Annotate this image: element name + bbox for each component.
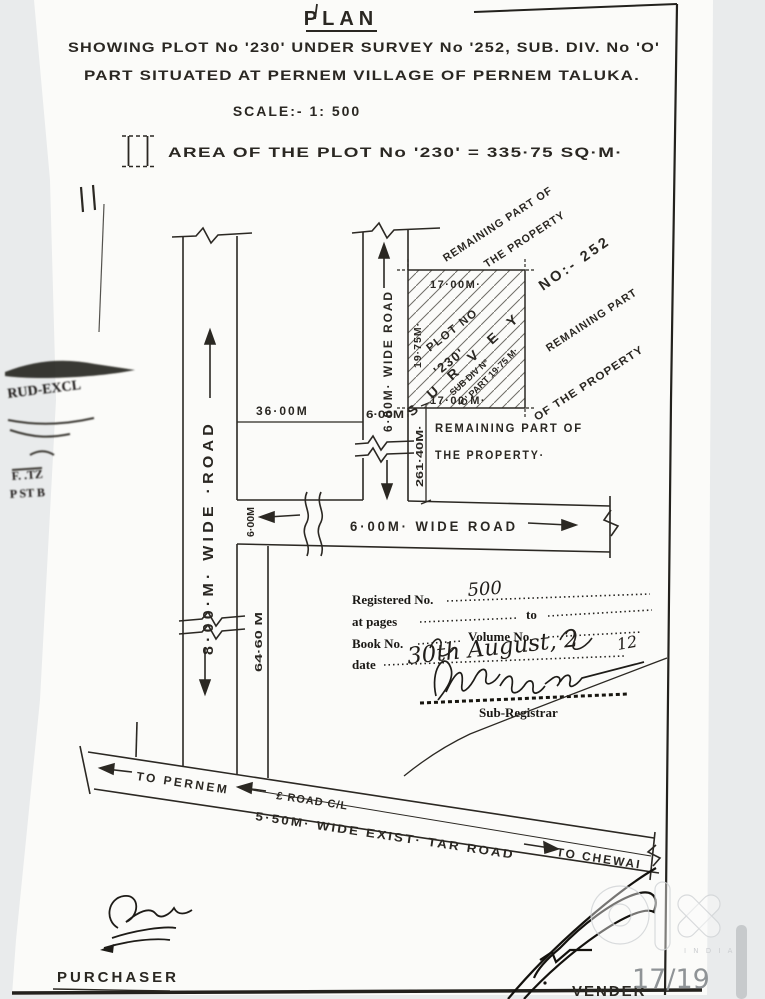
olx-bar-icon xyxy=(655,882,670,950)
stamp-text-3: P ST B xyxy=(9,485,45,501)
document-viewer: PLAN SHOWING PLOT No '230' UNDER SURVEY … xyxy=(0,0,765,999)
dim-261m: 261·40M· xyxy=(414,425,426,487)
book-no-label: Book No. xyxy=(352,636,403,651)
registered-no-value: 500 xyxy=(467,578,503,601)
remaining-below-2: THE PROPERTY· xyxy=(435,448,545,462)
page-title: PLAN xyxy=(304,8,378,30)
sub-registrar-label: Sub-Registrar xyxy=(479,705,558,720)
plot-dim-left: 19·75M· xyxy=(412,322,424,368)
left-road-label: 8·00·M· WIDE ·ROAD xyxy=(200,420,217,655)
dim-6m-top: 6·00M xyxy=(366,409,404,421)
plot-230: 17·00M· 17·00 M· 19·75M· PLOT NO '230' S… xyxy=(397,259,536,419)
stamp-text-2: F. .TZ xyxy=(11,467,43,483)
registered-no-label: Registered No. xyxy=(352,592,433,607)
scale-label: SCALE:- 1: 500 xyxy=(233,103,361,119)
remaining-below-1: REMAINING PART OF xyxy=(435,421,583,435)
subtitle-line2: PART SITUATED AT PERNEM VILLAGE OF PERNE… xyxy=(84,67,640,83)
plot-dim-top: 17·00M· xyxy=(430,279,481,291)
date-label: date xyxy=(352,657,376,672)
horizontal-road-label: 6·00M· WIDE ROAD xyxy=(350,519,518,534)
subtitle-line1: SHOWING PLOT No '230' UNDER SURVEY No '2… xyxy=(68,39,660,55)
purchaser-label: PURCHASER xyxy=(57,969,179,986)
at-pages-label: at pages xyxy=(352,614,397,629)
scrollbar-thumb[interactable] xyxy=(736,925,747,999)
watermark-country-label: I N D I A xyxy=(684,947,735,955)
dim-36m: 36·00M xyxy=(256,404,309,418)
page-indicator: 17/19 xyxy=(632,964,710,995)
date-suffix: 12 xyxy=(615,632,638,654)
dim-64m: 64·60 M xyxy=(253,612,265,672)
legend-label: AREA OF THE PLOT No '230' = 335·75 SQ·M· xyxy=(168,145,623,160)
dim-6m-left: 6·00M xyxy=(245,507,257,537)
to-label: to xyxy=(526,607,537,622)
